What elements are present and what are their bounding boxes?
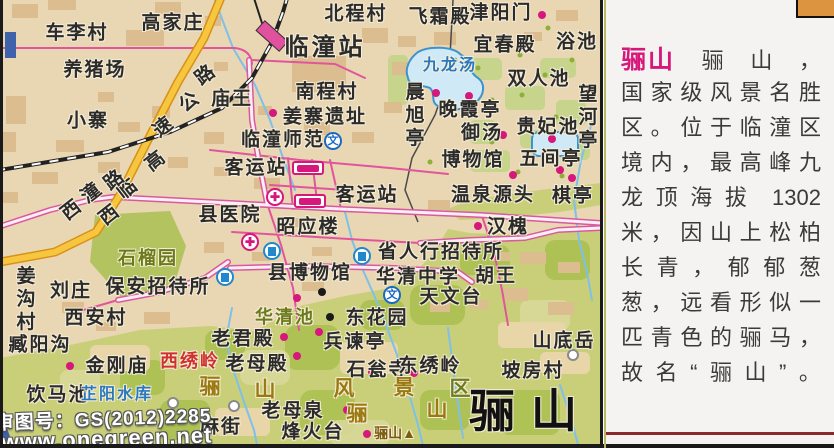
panel-char: 上 [740,215,762,247]
panel-char: 葱 [799,250,821,282]
panel-text-line: 龙顶海拔 1302 [621,180,821,215]
panel-char: 骊 [740,320,762,352]
panel-text-line: 境内，最高峰九 [621,145,821,180]
poi-dot [318,288,326,296]
panel-char: 海 [690,180,712,212]
map-panel-divider [600,0,603,448]
panel-char: 色 [680,320,702,352]
panel-char: ， [680,145,702,177]
panel-char: 名 [769,75,791,107]
panel-char: 青 [651,320,673,352]
panel-char: 家 [651,75,673,107]
school-icon: 文 [383,286,401,304]
panel-char: 山 [750,43,772,75]
poi-dot [538,11,546,19]
panel-char: 拔 [725,180,747,212]
panel-char: 最 [710,145,732,177]
panel-char: 临 [740,110,762,142]
panel-char: 马 [769,320,791,352]
map-canvas: 车李村高家庄北程村临潼站飞霜殿津阳门宜春殿浴池养猪场庙王南程村双人池小寨姜寨遗址… [0,0,601,448]
panel-char: 潼 [769,110,791,142]
panel-char: 区 [621,110,643,142]
divider-accent-line [604,0,606,448]
panel-bottom-rule [606,432,834,435]
hotel-glyph [358,252,366,261]
bus-glyph [299,198,321,205]
panel-text-line: 葱，远看形似一 [621,285,821,320]
hospital-icon: ✚ [266,188,284,206]
panel-char: 的 [710,320,732,352]
panel-char: 骊 [702,43,724,75]
panel-char: 匹 [621,320,643,352]
panel-char: 峰 [769,145,791,177]
map-left-border [0,0,3,448]
panel-char: 形 [740,285,762,317]
panel-char: 景 [740,75,762,107]
poi-dot [343,406,351,414]
panel-char: 1302 [772,185,821,211]
poi-dot [293,352,301,360]
panel-char: 国 [621,75,643,107]
poi-dot [269,109,277,117]
page-bottom-border [0,444,834,448]
panel-text-line: 米，因山上松柏 [621,215,821,250]
panel-text-line: 故名“骊山”。 [621,355,821,390]
panel-char: 名 [656,355,678,387]
panel-char: 山 [745,355,767,387]
panel-char: 。 [799,355,821,387]
panel-char: 长 [621,250,643,282]
poi-dot [363,430,371,438]
panel-char: 柏 [799,215,821,247]
panel-char: ， [799,320,821,352]
panel-char: 因 [680,215,702,247]
poi-dot [509,171,517,179]
poi-dot [548,135,556,143]
panel-char: 区 [799,110,821,142]
poi-dot [567,349,579,361]
poi-dot [293,294,301,302]
hospital-icon: ✚ [241,233,259,251]
hotel-glyph [268,247,276,256]
panel-char: 顶 [656,180,678,212]
panel-char: 葱 [621,285,643,317]
poi-dot [326,313,334,321]
poi-dot [474,222,482,230]
bus-icon [292,161,324,175]
panel-char: ， [692,250,714,282]
poi-dot [315,328,323,336]
panel-char: 风 [710,75,732,107]
page-corner-tab [796,0,834,18]
poi-dot [66,362,74,370]
panel-char: 看 [710,285,732,317]
panel-char: 位 [680,110,702,142]
poi-dot [432,89,440,97]
panel-char: ， [799,43,821,75]
hotel-icon [353,247,371,265]
panel-text-line: 匹青色的骊马， [621,320,821,355]
panel-char: 高 [740,145,762,177]
panel-char: ， [651,285,673,317]
poi-dot [556,166,564,174]
panel-char: 远 [680,285,702,317]
panel-char: 级 [680,75,702,107]
panel-char: 境 [621,145,643,177]
panel-char: 内 [651,145,673,177]
panel-char: 一 [799,285,821,317]
panel-char: 松 [769,215,791,247]
school-icon: 文 [324,132,342,150]
panel-char: ” [779,360,786,386]
poi-dot [368,368,376,376]
panel-char: 九 [799,145,821,177]
panel-char: 米 [621,215,643,247]
panel-char: 山 [710,215,732,247]
poi-dot [465,92,473,100]
hotel-icon [216,268,234,286]
poi-dot [280,333,288,341]
panel-text-line: 长青，郁郁葱 [621,250,821,285]
panel-char: 青 [657,250,679,282]
panel-char: 骊 [710,355,732,387]
panel-char: 似 [769,285,791,317]
lishan-map-page: 车李村高家庄北程村临潼站飞霜殿津阳门宜春殿浴池养猪场庙王南程村双人池小寨姜寨遗址… [0,0,834,448]
panel-char: 郁 [728,250,750,282]
poi-dot [568,174,576,182]
panel-char: 。 [651,110,673,142]
panel-char: “ [690,360,697,386]
panel-title: 骊山 [621,40,675,76]
hotel-icon [263,242,281,260]
panel-char: 胜 [799,75,821,107]
panel-char: 故 [621,355,643,387]
panel-char: 于 [710,110,732,142]
panel-title-line: 骊山骊山， [621,40,821,75]
panel-char: ， [651,215,673,247]
panel-char: 郁 [763,250,785,282]
bus-glyph [297,165,319,172]
bus-icon [294,194,326,208]
poi-dot [410,369,418,377]
panel-char: 龙 [621,180,643,212]
hotel-glyph [221,273,229,282]
poi-dot [228,400,240,412]
description-panel: 骊山骊山，国家级风景名胜区。位于临潼区境内，最高峰九龙顶海拔 1302米，因山上… [606,0,834,444]
panel-text-line: 区。位于临潼区 [621,110,821,145]
poi-dot [499,131,507,139]
map-base-art [0,0,601,448]
panel-text-line: 国家级风景名胜 [621,75,821,110]
